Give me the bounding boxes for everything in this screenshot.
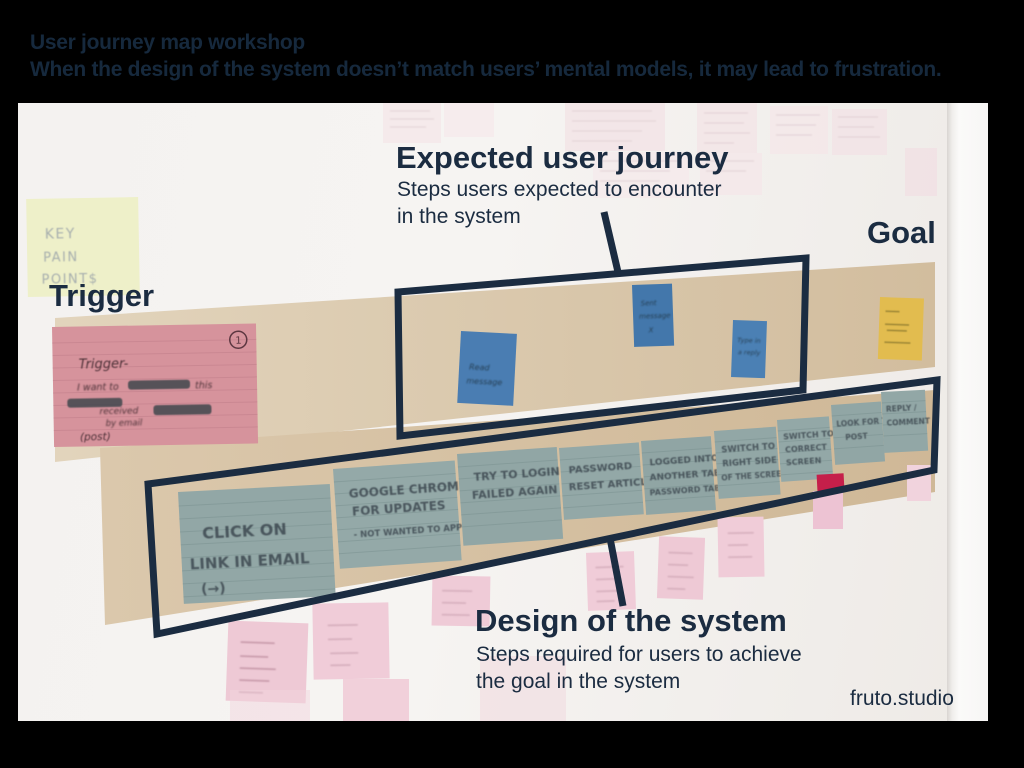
design-system-desc-line1: Steps required for users to achieve xyxy=(476,642,802,667)
trigger-card-title: Trigger- xyxy=(79,357,129,373)
goal-label: Goal xyxy=(867,214,936,251)
expected-note-2-line2: message xyxy=(639,312,671,321)
design-card-2: GOOGLE CHROME FOR UPDATES - NOT WANTED T… xyxy=(333,460,472,569)
trigger-card-footer: (post) xyxy=(80,431,111,444)
expected-journey-desc-line2: in the system xyxy=(397,204,521,229)
design-card-3: TRY TO LOGIN FAILED AGAIN xyxy=(457,447,564,546)
design-card-1: CLICK ON LINK IN EMAIL (→) xyxy=(178,484,336,604)
expected-note-1-line1: Read xyxy=(469,362,491,372)
expected-note-1-line2: message xyxy=(466,376,502,387)
design-card-1-line3: (→) xyxy=(201,581,226,598)
trigger-card-body2: this xyxy=(195,380,213,391)
design-card-7: SWITCH TO CORRECT SCREEN xyxy=(777,416,837,482)
workshop-photo: KEY PAIN POINT$ 1 Trigger- I want to thi… xyxy=(18,103,988,721)
expected-note-3: Type in a reply xyxy=(731,320,767,378)
expected-note-2-line3: X xyxy=(647,326,653,334)
design-card-9: REPLY / COMMENT xyxy=(881,389,932,452)
expected-note-3-line2: a reply xyxy=(738,348,761,357)
trigger-label: Trigger xyxy=(49,277,154,314)
pain-note-line1: KEY xyxy=(45,226,76,243)
goal-note xyxy=(878,297,924,360)
studio-credit: fruto.studio xyxy=(850,686,954,711)
design-system-desc-line2: the goal in the system xyxy=(476,669,680,694)
expected-callout-line xyxy=(604,212,618,272)
slide-subtitle: When the design of the system doesn’t ma… xyxy=(30,58,941,82)
expected-note-1: Read message xyxy=(457,331,517,406)
trigger-card-body4: by email xyxy=(106,418,143,429)
expected-note-2-line1: Sent xyxy=(641,299,657,308)
design-card-8-line2: POST xyxy=(845,431,869,442)
design-system-title: Design of the system xyxy=(475,602,787,639)
trigger-card-body1: I want to xyxy=(77,382,119,394)
expected-note-2: Sent message X xyxy=(632,284,674,347)
trigger-card: 1 Trigger- I want to this received by em… xyxy=(52,323,258,447)
slide: User journey map workshop When the desig… xyxy=(0,0,1024,768)
expected-journey-title: Expected user journey xyxy=(396,139,729,176)
expected-note-3-line1: Type in xyxy=(737,336,761,345)
design-card-9-line1: REPLY / xyxy=(886,403,917,414)
expected-journey-desc-line1: Steps users expected to encounter xyxy=(397,177,722,202)
design-card-5: LOGGED INTO ANOTHER TAB PASSWORD TAB xyxy=(641,436,723,515)
pain-note-line2: PAIN xyxy=(43,250,79,266)
slide-title: User journey map workshop xyxy=(30,31,305,55)
trigger-card-number: 1 xyxy=(235,336,242,347)
trigger-card-body3: received xyxy=(99,407,138,418)
